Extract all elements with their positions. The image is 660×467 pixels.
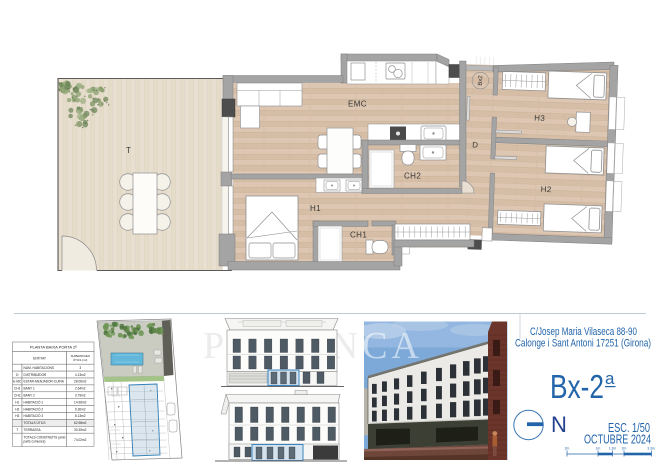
- svg-text:BANY 2: BANY 2: [24, 393, 36, 397]
- svg-text:62.98m2: 62.98m2: [74, 421, 87, 425]
- svg-text:C/Josep Maria Vilaseca 88-90: C/Josep Maria Vilaseca 88-90: [530, 326, 637, 338]
- svg-text:28.06m2: 28.06m2: [74, 380, 87, 384]
- svg-text:H3: H3: [534, 113, 545, 122]
- svg-text:ENTITAT: ENTITAT: [33, 356, 46, 360]
- svg-text:4.13m2: 4.13m2: [75, 373, 86, 377]
- svg-text:Calonge i Sant Antoni 17251 (: Calonge i Sant Antoni 17251 (Girona): [515, 338, 651, 350]
- svg-text:74.02m2: 74.02m2: [74, 438, 87, 442]
- svg-text:EMC: EMC: [348, 100, 367, 109]
- svg-text:H2: H2: [541, 185, 552, 194]
- svg-text:Bx-2: Bx-2: [550, 368, 604, 405]
- svg-text:N: N: [551, 412, 567, 437]
- svg-text:BANY 1: BANY 1: [24, 387, 36, 391]
- svg-text:H1: H1: [310, 204, 321, 213]
- svg-text:E-MC: E-MC: [13, 380, 22, 384]
- svg-text:1m: 1m: [596, 447, 601, 451]
- svg-text:a: a: [605, 369, 615, 388]
- svg-text:H3: H3: [15, 414, 19, 418]
- svg-text:CH2: CH2: [14, 393, 21, 397]
- svg-text:3.3m: 3.3m: [647, 447, 655, 451]
- svg-text:ESTAR-MENJADOR-CUINA: ESTAR-MENJADOR-CUINA: [24, 380, 65, 384]
- svg-text:parts comunes): parts comunes): [24, 440, 46, 444]
- svg-text:CH1: CH1: [350, 231, 367, 240]
- svg-text:3.79m2: 3.79m2: [75, 393, 86, 397]
- svg-text:14.96m2: 14.96m2: [74, 400, 87, 404]
- svg-text:T: T: [16, 428, 18, 432]
- svg-text:HABITACIÓ 1: HABITACIÓ 1: [24, 399, 44, 404]
- svg-text:1.2m: 1.2m: [609, 447, 617, 451]
- svg-text:T: T: [126, 146, 131, 155]
- svg-text:HABITACIÓ 3: HABITACIÓ 3: [24, 413, 44, 418]
- svg-text:DISTRIBUÏDOR: DISTRIBUÏDOR: [24, 373, 48, 377]
- svg-text:CH2: CH2: [404, 172, 421, 181]
- svg-text:2.64m2: 2.64m2: [75, 387, 86, 391]
- svg-text:CH1: CH1: [14, 387, 21, 391]
- svg-text:H2: H2: [15, 407, 19, 411]
- svg-text:PLANTA BAIXA PORTA 2ª: PLANTA BAIXA PORTA 2ª: [30, 344, 77, 349]
- svg-text:NUM. HABITACIONS: NUM. HABITACIONS: [24, 366, 54, 370]
- svg-text:2m: 2m: [565, 447, 570, 451]
- svg-text:30.39m2: 30.39m2: [74, 428, 87, 432]
- svg-text:8.13m2: 8.13m2: [75, 414, 86, 418]
- svg-text:2m: 2m: [622, 447, 627, 451]
- svg-text:HABITACIÓ 2: HABITACIÓ 2: [24, 406, 44, 411]
- svg-text:ÚTILS (m²): ÚTILS (m²): [73, 358, 87, 362]
- svg-text:Bx2: Bx2: [478, 75, 484, 86]
- svg-text:3: 3: [79, 366, 81, 370]
- svg-text:OCTUBRE 2024: OCTUBRE 2024: [584, 432, 651, 447]
- svg-text:9.30m2: 9.30m2: [75, 407, 86, 411]
- svg-text:TOTALS ÚTILS: TOTALS ÚTILS: [24, 420, 46, 425]
- svg-text:TERRASSA: TERRASSA: [24, 428, 42, 432]
- svg-text:D: D: [472, 140, 478, 149]
- svg-text:H1: H1: [15, 400, 19, 404]
